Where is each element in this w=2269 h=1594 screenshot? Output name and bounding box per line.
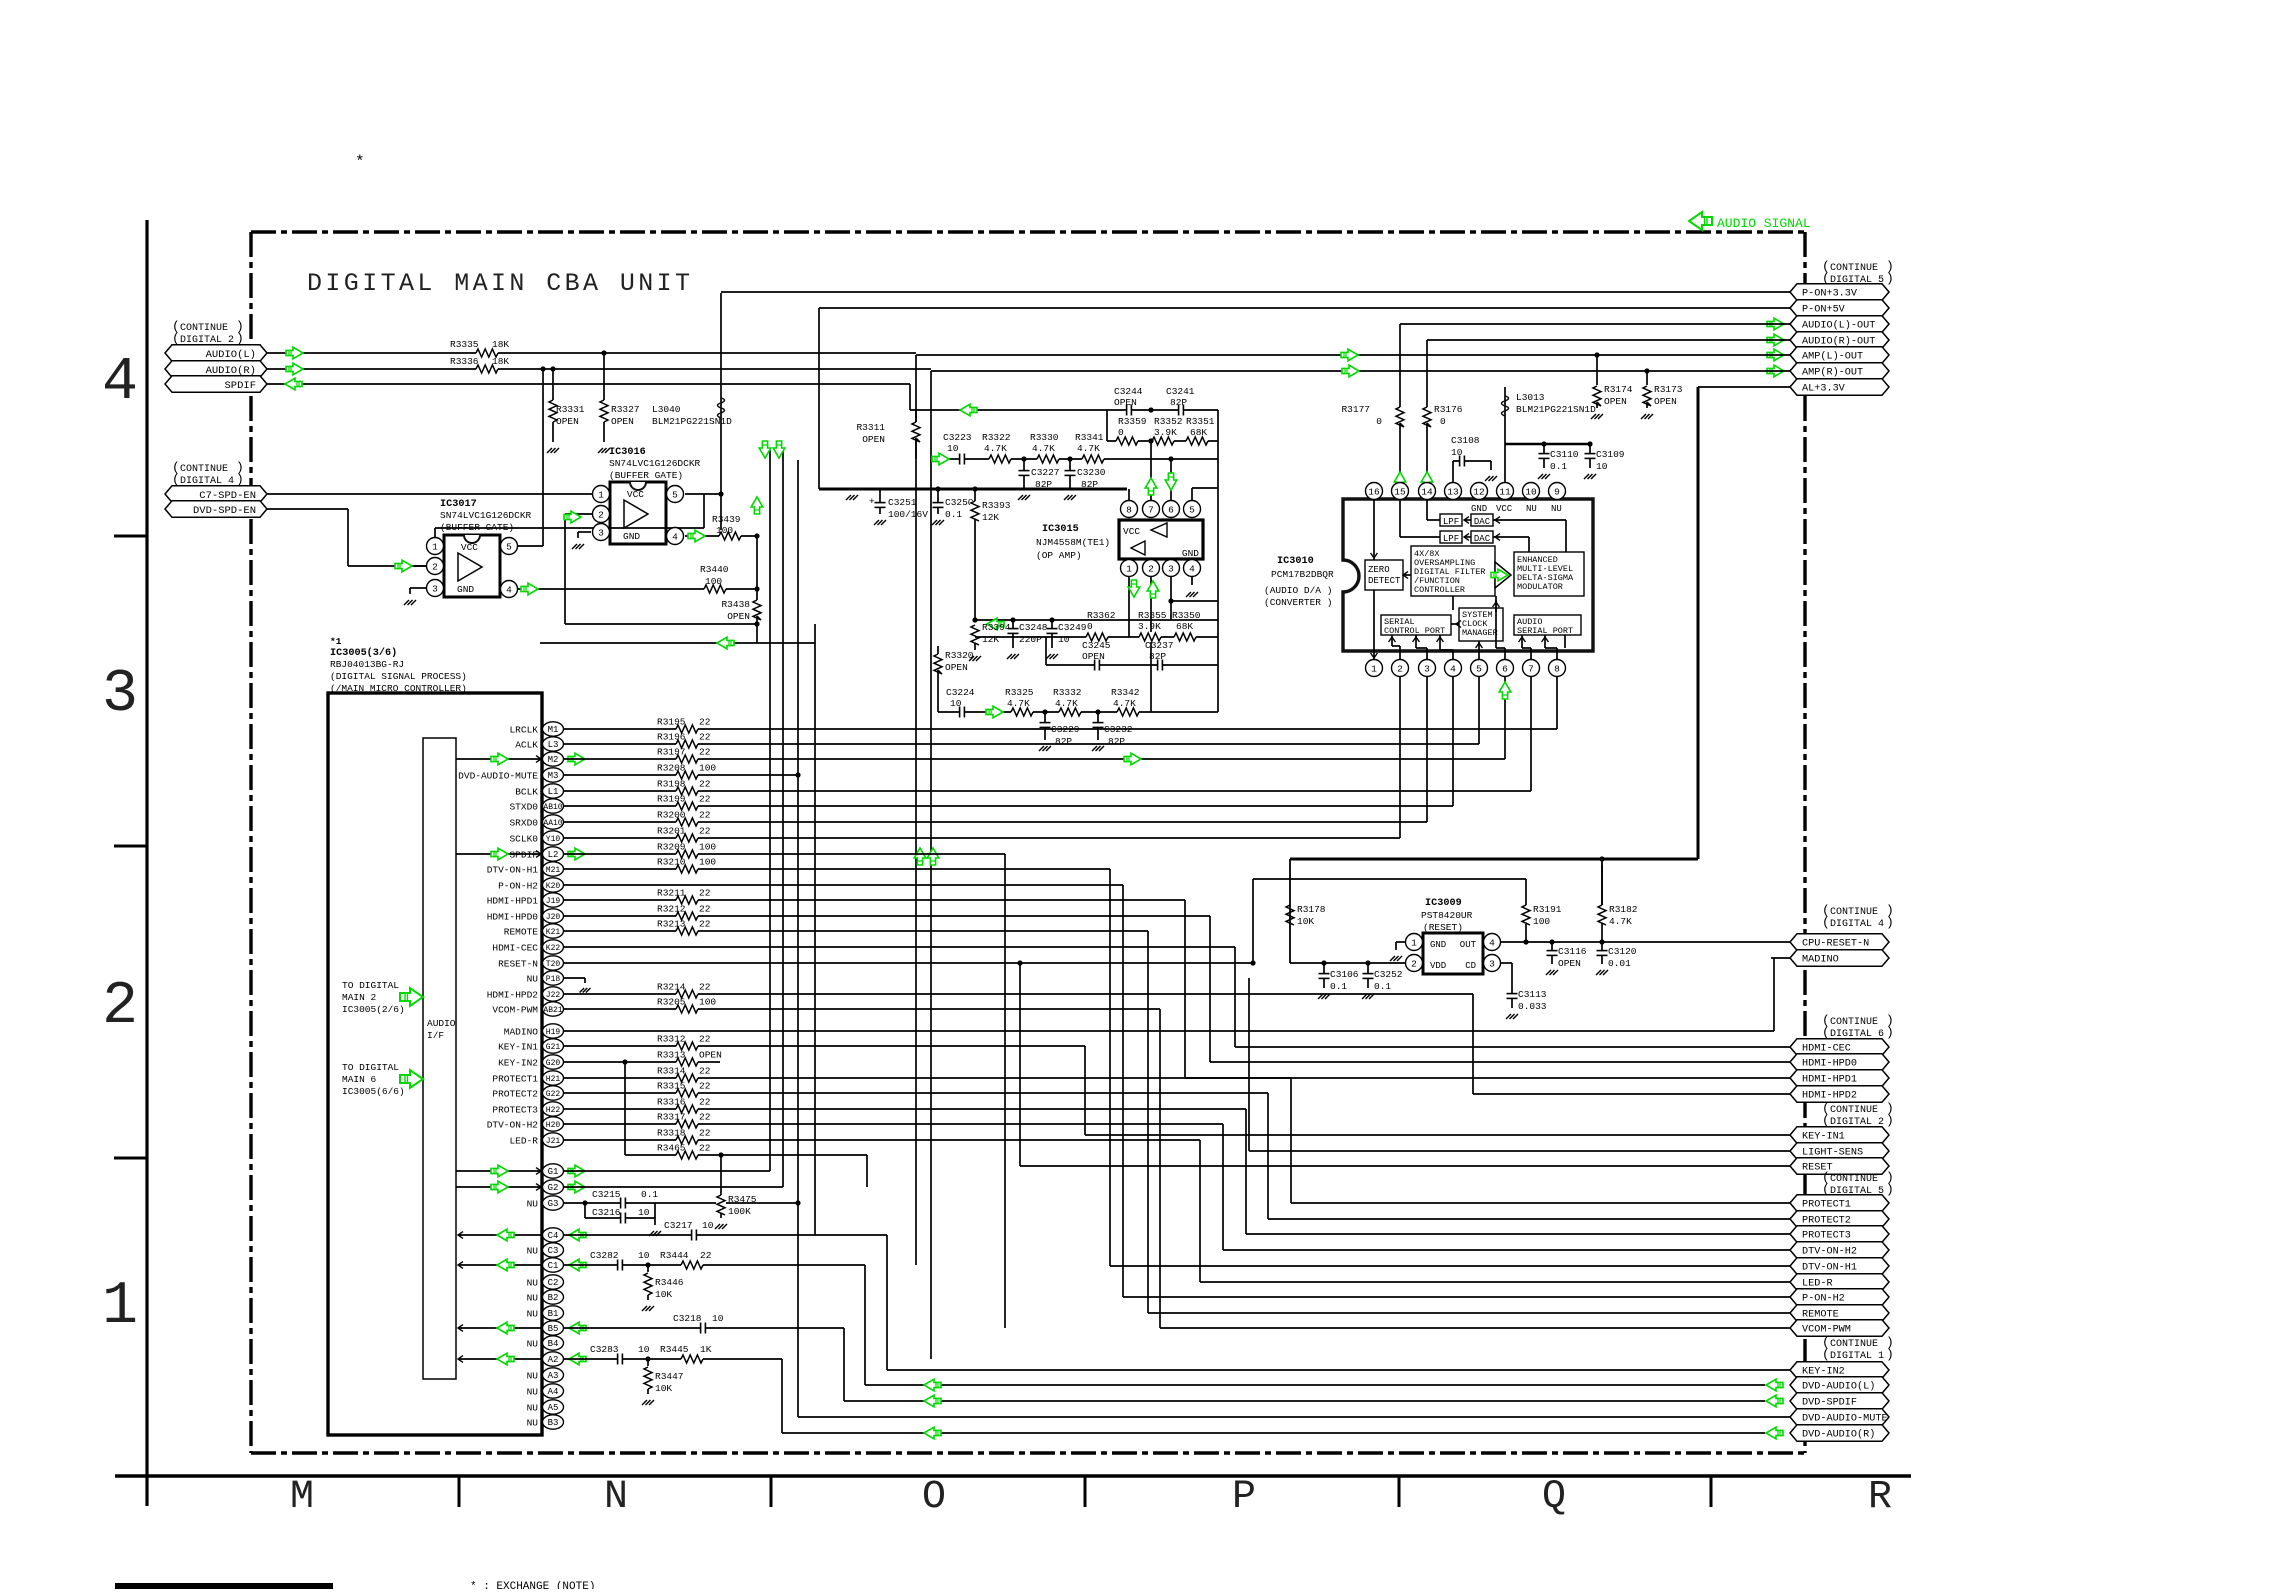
svg-text:AUDIO(L): AUDIO(L) [206, 349, 256, 361]
svg-text:R3335: R3335 [450, 339, 479, 350]
svg-text:R3177: R3177 [1341, 404, 1370, 415]
svg-text:4.7K: 4.7K [1113, 698, 1136, 709]
svg-text:3.9K: 3.9K [1154, 427, 1177, 438]
svg-text:IC3005(2/6): IC3005(2/6) [342, 1004, 405, 1015]
svg-text:100: 100 [716, 525, 733, 536]
svg-text:G1: G1 [548, 1167, 559, 1177]
svg-text:H21: H21 [546, 1075, 561, 1084]
svg-text:DIGITAL 5: DIGITAL 5 [1830, 275, 1884, 286]
svg-text:M: M [290, 1475, 314, 1520]
svg-text:3.9K: 3.9K [1138, 621, 1161, 632]
svg-text:1: 1 [598, 489, 604, 500]
svg-text:2: 2 [1148, 563, 1154, 574]
svg-text:AA10: AA10 [543, 819, 562, 828]
svg-text:10: 10 [1525, 486, 1537, 497]
svg-text:P18: P18 [546, 975, 561, 984]
svg-text:C3120: C3120 [1608, 946, 1637, 957]
svg-text:0.1: 0.1 [1330, 981, 1347, 992]
svg-text:R3465: R3465 [657, 1143, 686, 1154]
svg-text:VCC: VCC [1496, 504, 1513, 514]
svg-text:12K: 12K [982, 634, 999, 645]
svg-text:3: 3 [1489, 958, 1495, 969]
svg-text:DVD-SPDIF: DVD-SPDIF [1802, 1398, 1857, 1409]
svg-text:4: 4 [1189, 563, 1195, 574]
svg-text:M21: M21 [546, 866, 561, 875]
svg-text:LIGHT-SENS: LIGHT-SENS [1802, 1148, 1863, 1159]
svg-text:DTV-ON-H1: DTV-ON-H1 [487, 865, 539, 876]
svg-text:10: 10 [638, 1250, 650, 1261]
svg-text:22: 22 [699, 919, 711, 930]
svg-text:68K: 68K [1190, 427, 1207, 438]
svg-text:100: 100 [699, 763, 716, 774]
svg-text:AB10: AB10 [543, 803, 562, 812]
svg-text:R3393: R3393 [982, 500, 1011, 511]
svg-text:C3215: C3215 [592, 1189, 621, 1200]
svg-text:B2: B2 [548, 1293, 559, 1303]
svg-text:R3195: R3195 [657, 717, 686, 728]
svg-text:NU: NU [1551, 504, 1562, 514]
svg-text:R3439: R3439 [712, 514, 741, 525]
svg-text:NU: NU [527, 1293, 539, 1304]
svg-text:DVD-AUDIO-MUTE: DVD-AUDIO-MUTE [458, 771, 538, 782]
svg-text:HDMI-HPD0: HDMI-HPD0 [1802, 1059, 1857, 1070]
svg-text:J19: J19 [546, 897, 561, 906]
svg-text:OPEN: OPEN [1604, 396, 1627, 407]
svg-text:): ) [236, 331, 244, 346]
svg-text:R3445: R3445 [660, 1344, 689, 1355]
svg-text:10: 10 [712, 1313, 724, 1324]
svg-text:R3322: R3322 [982, 432, 1011, 443]
svg-text:CONTINUE: CONTINUE [180, 323, 228, 334]
svg-text:NU: NU [527, 1339, 539, 1350]
svg-text:G20: G20 [546, 1059, 561, 1068]
svg-text:10: 10 [1058, 634, 1070, 645]
svg-text:DVD-AUDIO(L): DVD-AUDIO(L) [1802, 1381, 1875, 1393]
svg-text:2: 2 [598, 509, 604, 520]
svg-text:KEY-IN2: KEY-IN2 [498, 1058, 538, 1069]
svg-text:0.033: 0.033 [1518, 1001, 1547, 1012]
svg-text:VCC: VCC [461, 542, 478, 553]
svg-text:(DIGITAL SIGNAL PROCESS): (DIGITAL SIGNAL PROCESS) [330, 671, 467, 682]
svg-text:14: 14 [1421, 486, 1433, 497]
svg-text:22: 22 [699, 1143, 711, 1154]
svg-text:IC3017: IC3017 [440, 499, 477, 510]
svg-text:R3205: R3205 [657, 997, 686, 1008]
svg-text:B4: B4 [548, 1339, 559, 1349]
svg-text:M1: M1 [548, 725, 559, 735]
svg-text:H22: H22 [546, 1106, 561, 1115]
svg-text:C3248: C3248 [1019, 622, 1048, 633]
svg-text:8: 8 [1126, 504, 1132, 515]
svg-text:R3211: R3211 [657, 888, 686, 899]
svg-text:5: 5 [1189, 504, 1195, 515]
svg-text:IC3005(3/6): IC3005(3/6) [330, 647, 397, 659]
svg-text:100K: 100K [728, 1206, 751, 1217]
svg-text:MANAGER: MANAGER [1462, 628, 1498, 638]
svg-text:0.1: 0.1 [945, 509, 962, 520]
svg-text:NU: NU [527, 1387, 539, 1398]
svg-text:MADINO: MADINO [504, 1027, 539, 1038]
svg-text:(: ( [1822, 271, 1830, 286]
svg-text:1: 1 [1126, 563, 1132, 574]
svg-text:9: 9 [1554, 486, 1560, 497]
svg-text:KEY-IN1: KEY-IN1 [1802, 1132, 1845, 1143]
svg-text:): ) [1886, 1025, 1894, 1040]
svg-text:7: 7 [1528, 663, 1534, 674]
svg-text:DIGITAL 4: DIGITAL 4 [1830, 919, 1884, 930]
svg-text:VDD: VDD [1430, 961, 1446, 971]
svg-text:PROTECT3: PROTECT3 [492, 1105, 538, 1116]
svg-text:AUDIO(L)-OUT: AUDIO(L)-OUT [1802, 320, 1875, 332]
svg-text:HDMI-CEC: HDMI-CEC [1802, 1044, 1851, 1055]
svg-text:+: + [869, 496, 875, 507]
svg-text:82P: 82P [1035, 479, 1052, 490]
svg-text:3: 3 [1424, 663, 1430, 674]
svg-text:AUDIO(R)-OUT: AUDIO(R)-OUT [1802, 336, 1875, 348]
svg-text:DAC: DAC [1474, 517, 1491, 527]
svg-text:11: 11 [1499, 486, 1511, 497]
svg-text:Q: Q [1542, 1475, 1566, 1520]
svg-text:(RESET): (RESET) [1423, 922, 1463, 933]
svg-text:REMOTE: REMOTE [504, 927, 539, 938]
svg-text:L2: L2 [548, 850, 559, 860]
svg-text:C3223: C3223 [943, 432, 972, 443]
svg-text:7: 7 [1148, 504, 1154, 515]
svg-text:VCOM-PWM: VCOM-PWM [492, 1005, 538, 1016]
svg-text:C3229: C3229 [1051, 724, 1080, 735]
svg-text:OUT: OUT [1460, 940, 1477, 950]
svg-text:R3330: R3330 [1030, 432, 1059, 443]
svg-text:C3217: C3217 [664, 1220, 693, 1231]
svg-text:(: ( [1822, 1347, 1830, 1362]
svg-text:R3331: R3331 [556, 404, 585, 415]
svg-text:SRXD0: SRXD0 [509, 818, 538, 829]
svg-text:TO DIGITAL: TO DIGITAL [342, 980, 399, 991]
svg-text:12K: 12K [982, 512, 999, 523]
svg-text:0: 0 [1118, 427, 1124, 438]
svg-text:22: 22 [699, 826, 711, 837]
svg-text:6: 6 [1168, 504, 1174, 515]
svg-text:(: ( [1822, 1182, 1830, 1197]
svg-text:GND: GND [1182, 548, 1199, 559]
svg-text:R3362: R3362 [1087, 610, 1116, 621]
svg-text:C3216: C3216 [592, 1207, 621, 1218]
svg-text:O: O [922, 1475, 946, 1520]
svg-text:VCC: VCC [627, 489, 644, 500]
svg-text:C3: C3 [548, 1246, 559, 1256]
svg-text:0: 0 [1440, 416, 1446, 427]
svg-text:A2: A2 [548, 1355, 559, 1365]
svg-text:R3176: R3176 [1434, 404, 1463, 415]
svg-text:CONTROL PORT: CONTROL PORT [1384, 626, 1445, 636]
svg-text:SERIAL PORT: SERIAL PORT [1517, 626, 1573, 636]
svg-text:R3178: R3178 [1297, 904, 1326, 915]
svg-text:C3252: C3252 [1374, 969, 1403, 980]
svg-text:22: 22 [699, 1112, 711, 1123]
svg-text:R: R [1868, 1475, 1892, 1520]
svg-text:R3475: R3475 [728, 1194, 757, 1205]
svg-text:2: 2 [432, 561, 438, 572]
svg-text:100: 100 [705, 576, 722, 587]
svg-text:REMOTE: REMOTE [1802, 1310, 1839, 1321]
svg-text:PROTECT3: PROTECT3 [1802, 1231, 1851, 1242]
svg-text:OPEN: OPEN [945, 662, 968, 673]
svg-text:N: N [604, 1475, 628, 1520]
svg-text:): ) [1886, 1347, 1894, 1362]
svg-text:C3109: C3109 [1596, 449, 1625, 460]
svg-text:1K: 1K [700, 1344, 712, 1355]
svg-text:4.7K: 4.7K [1055, 698, 1078, 709]
svg-text:P: P [1232, 1475, 1256, 1520]
svg-text:B5: B5 [548, 1324, 559, 1334]
svg-text:13: 13 [1447, 486, 1459, 497]
svg-text:NJM4558M(TE1): NJM4558M(TE1) [1036, 537, 1110, 548]
svg-text:4: 4 [506, 584, 512, 595]
svg-text:PROTECT2: PROTECT2 [492, 1089, 538, 1100]
svg-text:CONTINUE: CONTINUE [180, 464, 228, 475]
svg-text:AMP(R)-OUT: AMP(R)-OUT [1802, 367, 1863, 379]
svg-text:(CONVERTER ): (CONVERTER ) [1264, 597, 1332, 608]
svg-text:A3: A3 [548, 1371, 559, 1381]
svg-text:(: ( [172, 331, 180, 346]
svg-text:G22: G22 [546, 1090, 561, 1099]
svg-text:OPEN: OPEN [1654, 396, 1677, 407]
svg-text:3: 3 [432, 583, 438, 594]
svg-text:I/F: I/F [427, 1030, 444, 1041]
svg-text:NU: NU [527, 1371, 539, 1382]
svg-text:R3446: R3446 [655, 1277, 684, 1288]
svg-text:C3283: C3283 [590, 1344, 619, 1355]
svg-text:NU: NU [527, 1403, 539, 1414]
svg-text:R3209: R3209 [657, 842, 686, 853]
svg-text:DIGITAL 6: DIGITAL 6 [1830, 1029, 1884, 1040]
svg-text:8: 8 [1554, 663, 1560, 674]
svg-text:LRCLK: LRCLK [509, 725, 538, 736]
svg-text:OPEN: OPEN [699, 1050, 722, 1061]
svg-text:R3191: R3191 [1533, 904, 1562, 915]
svg-text:R3325: R3325 [1005, 687, 1034, 698]
svg-text:4: 4 [102, 349, 138, 417]
svg-text:CPU-RESET-N: CPU-RESET-N [1802, 939, 1869, 950]
svg-text:DTV-ON-H2: DTV-ON-H2 [487, 1120, 539, 1131]
svg-text:(BUFFER GATE): (BUFFER GATE) [609, 470, 683, 481]
svg-text:C3241: C3241 [1166, 386, 1195, 397]
svg-text:C4: C4 [548, 1231, 559, 1241]
svg-text:STXD0: STXD0 [509, 802, 538, 813]
svg-text:R3341: R3341 [1075, 432, 1104, 443]
svg-text:CONTINUE: CONTINUE [1830, 1339, 1878, 1350]
svg-text:GND: GND [623, 531, 640, 542]
svg-text:HDMI-HPD0: HDMI-HPD0 [487, 912, 539, 923]
svg-text:C3230: C3230 [1077, 467, 1106, 478]
svg-text:R3197: R3197 [657, 747, 686, 758]
svg-text:H20: H20 [546, 1121, 561, 1130]
svg-text:0.1: 0.1 [1374, 981, 1391, 992]
svg-text:C3232: C3232 [1104, 724, 1133, 735]
svg-text:MAIN 6: MAIN 6 [342, 1074, 377, 1085]
svg-text:AL+3.3V: AL+3.3V [1802, 384, 1846, 395]
svg-text:4.7K: 4.7K [1609, 916, 1632, 927]
svg-text:R3312: R3312 [657, 1034, 686, 1045]
svg-text:OPEN: OPEN [1558, 958, 1581, 969]
svg-text:1: 1 [102, 1273, 138, 1341]
svg-text:C1: C1 [548, 1261, 559, 1271]
svg-text:DETECT: DETECT [1368, 576, 1401, 586]
svg-text:C3250: C3250 [945, 497, 974, 508]
svg-text:*1: *1 [330, 636, 342, 647]
svg-text:R3212: R3212 [657, 904, 686, 915]
svg-text:BLM21PG221SN1D: BLM21PG221SN1D [1516, 404, 1596, 415]
svg-text:CD: CD [1465, 961, 1476, 971]
svg-text:J22: J22 [546, 991, 561, 1000]
svg-text:22: 22 [699, 747, 711, 758]
svg-text:R3200: R3200 [657, 810, 686, 821]
svg-text:HDMI-CEC: HDMI-CEC [492, 943, 538, 954]
svg-text:P-ON-H2: P-ON-H2 [1802, 1294, 1845, 1305]
svg-text:DIGITAL 1: DIGITAL 1 [1830, 1351, 1884, 1362]
svg-text:R3213: R3213 [657, 919, 686, 930]
svg-text:R3196: R3196 [657, 732, 686, 743]
svg-text:4.7K: 4.7K [984, 443, 1007, 454]
svg-text:C3282: C3282 [590, 1250, 619, 1261]
svg-text:G2: G2 [548, 1183, 559, 1193]
svg-text:G3: G3 [548, 1199, 559, 1209]
svg-text:OPEN: OPEN [862, 434, 885, 445]
svg-text:CONTINUE: CONTINUE [1830, 263, 1878, 274]
svg-text:KEY-IN2: KEY-IN2 [1802, 1367, 1845, 1378]
svg-text:R3438: R3438 [721, 599, 750, 610]
svg-text:SPDIF: SPDIF [224, 380, 256, 392]
svg-text:2: 2 [1411, 958, 1417, 969]
svg-text:82P: 82P [1055, 736, 1072, 747]
svg-text:R3311: R3311 [856, 422, 885, 433]
svg-text:BCLK: BCLK [515, 787, 538, 798]
svg-text:0.1: 0.1 [641, 1189, 658, 1200]
svg-text:4.7K: 4.7K [1007, 698, 1030, 709]
svg-text:P-ON-H2: P-ON-H2 [498, 881, 538, 892]
svg-text:AUDIO SIGNAL: AUDIO SIGNAL [1717, 216, 1811, 231]
svg-text:22: 22 [699, 1081, 711, 1092]
svg-text:0.01: 0.01 [1608, 958, 1631, 969]
svg-text:CONTROLLER: CONTROLLER [1414, 585, 1465, 595]
svg-text:16: 16 [1368, 486, 1380, 497]
svg-text:MADINO: MADINO [1802, 955, 1839, 966]
svg-text:R3327: R3327 [611, 404, 640, 415]
svg-text:RBJ04013BG-RJ: RBJ04013BG-RJ [330, 659, 404, 670]
svg-text:R3315: R3315 [657, 1081, 686, 1092]
svg-text:68K: 68K [1176, 621, 1193, 632]
svg-text:HDMI-HPD2: HDMI-HPD2 [487, 990, 539, 1001]
svg-text:NU: NU [527, 1246, 539, 1257]
svg-text:R3336: R3336 [450, 356, 479, 367]
svg-text:4: 4 [672, 531, 678, 542]
svg-text:82P: 82P [1081, 479, 1098, 490]
svg-text:22: 22 [700, 1250, 712, 1261]
svg-text:100/16V: 100/16V [888, 509, 928, 520]
svg-text:L3: L3 [548, 740, 559, 750]
svg-text:DVD-AUDIO(R): DVD-AUDIO(R) [1802, 1429, 1875, 1441]
svg-text:AUDIO: AUDIO [427, 1018, 456, 1029]
svg-text:C3116: C3116 [1558, 946, 1587, 957]
svg-text:R3201: R3201 [657, 826, 686, 837]
svg-text:R3314: R3314 [657, 1066, 686, 1077]
svg-text:82P: 82P [1149, 651, 1166, 662]
svg-text:OPEN: OPEN [1082, 651, 1105, 662]
svg-text:L1: L1 [548, 787, 559, 797]
svg-text:R3198: R3198 [657, 779, 686, 790]
svg-text:C3244: C3244 [1114, 386, 1143, 397]
svg-text:GND: GND [1430, 940, 1446, 950]
svg-text:R3359: R3359 [1118, 416, 1147, 427]
svg-text:NU: NU [527, 1418, 539, 1429]
svg-text:22: 22 [699, 779, 711, 790]
svg-text:10: 10 [638, 1207, 650, 1218]
svg-text:NU: NU [527, 1309, 539, 1320]
svg-text:NU: NU [527, 974, 539, 985]
svg-text:SCLK0: SCLK0 [509, 834, 538, 845]
svg-text:B3: B3 [548, 1418, 559, 1428]
svg-text:C3224: C3224 [946, 687, 975, 698]
svg-text:R3355: R3355 [1138, 610, 1167, 621]
svg-text:R3440: R3440 [700, 564, 729, 575]
svg-text:R3214: R3214 [657, 982, 686, 993]
svg-text:ZERO: ZERO [1368, 565, 1390, 575]
svg-text:C3113: C3113 [1518, 989, 1547, 1000]
svg-text:SPDIF: SPDIF [509, 850, 538, 861]
svg-text:L3040: L3040 [652, 404, 681, 415]
svg-text:R3352: R3352 [1154, 416, 1183, 427]
svg-text:C3245: C3245 [1082, 640, 1111, 651]
svg-text:22: 22 [699, 1128, 711, 1139]
svg-text:18K: 18K [492, 356, 509, 367]
svg-text:10: 10 [638, 1344, 650, 1355]
svg-text:PROTECT2: PROTECT2 [1802, 1216, 1851, 1227]
svg-text:R3350: R3350 [1172, 610, 1201, 621]
svg-text:DTV-ON-H1: DTV-ON-H1 [1802, 1263, 1857, 1274]
svg-text:0: 0 [1087, 621, 1093, 632]
svg-text:K20: K20 [546, 882, 561, 891]
svg-text:R3447: R3447 [655, 1371, 684, 1382]
svg-text:10K: 10K [655, 1289, 672, 1300]
svg-text:C7-SPD-EN: C7-SPD-EN [199, 490, 256, 502]
svg-text:OPEN: OPEN [1114, 397, 1137, 408]
svg-text:(AUDIO D/A ): (AUDIO D/A ) [1264, 585, 1332, 596]
svg-text:OPEN: OPEN [556, 416, 579, 427]
svg-text:1: 1 [1411, 937, 1417, 948]
svg-text:DAC: DAC [1474, 534, 1491, 544]
svg-text:AB21: AB21 [543, 1006, 562, 1015]
svg-text:AUDIO(R): AUDIO(R) [206, 365, 256, 377]
svg-text:C3108: C3108 [1451, 435, 1480, 446]
svg-text:3: 3 [102, 661, 138, 729]
svg-text:4: 4 [1450, 663, 1456, 674]
svg-text:RESET-N: RESET-N [498, 959, 538, 970]
svg-text:M3: M3 [548, 771, 559, 781]
svg-text:15: 15 [1394, 486, 1406, 497]
svg-text:22: 22 [699, 732, 711, 743]
svg-text:): ) [1886, 1182, 1894, 1197]
svg-text:A4: A4 [548, 1387, 559, 1397]
svg-text:OPEN: OPEN [611, 416, 634, 427]
svg-text:R3182: R3182 [1609, 904, 1638, 915]
svg-text:C3249: C3249 [1058, 622, 1087, 633]
svg-text:MAIN 2: MAIN 2 [342, 992, 377, 1003]
svg-text:C3251: C3251 [888, 497, 917, 508]
svg-text:CONTINUE: CONTINUE [1830, 1017, 1878, 1028]
svg-text:LPF: LPF [1443, 534, 1459, 544]
svg-text:GND: GND [1471, 504, 1487, 514]
svg-text:5: 5 [506, 541, 512, 552]
